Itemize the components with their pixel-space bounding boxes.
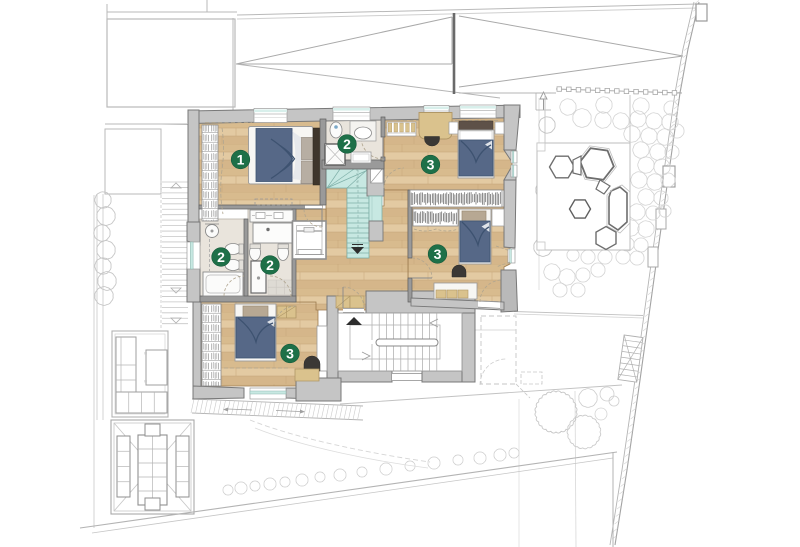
svg-text:3: 3 (427, 157, 435, 173)
svg-text:2: 2 (343, 136, 351, 152)
svg-text:2: 2 (266, 257, 274, 273)
svg-text:3: 3 (434, 246, 442, 262)
svg-text:2: 2 (217, 249, 225, 265)
svg-text:3: 3 (286, 346, 294, 362)
svg-text:1: 1 (237, 152, 245, 168)
